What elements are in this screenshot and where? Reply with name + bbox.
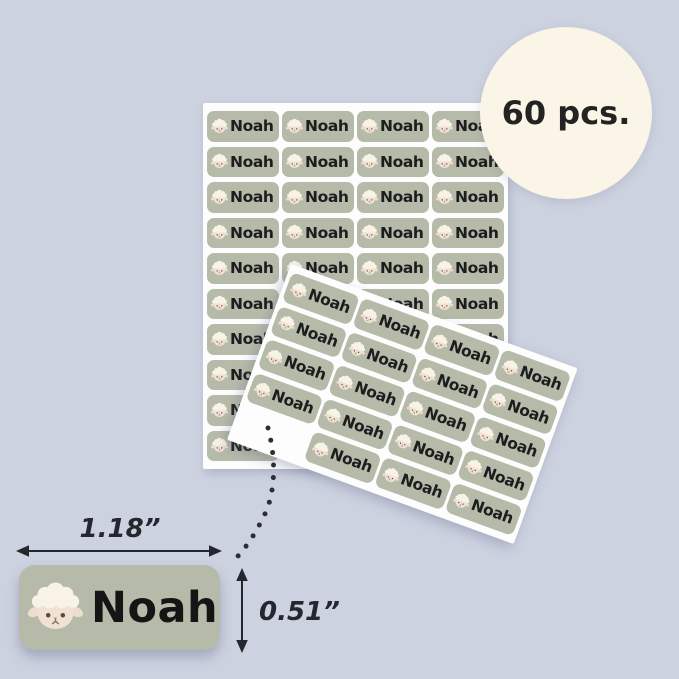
label-name-text: Noah bbox=[505, 396, 552, 428]
name-label: Noah bbox=[207, 253, 279, 284]
label-name-text: Noah bbox=[294, 319, 341, 351]
height-dimension-label: 0.51” bbox=[259, 597, 340, 627]
sheep-icon bbox=[286, 153, 303, 170]
label-name-text: Noah bbox=[380, 188, 424, 206]
label-name-text: Noah bbox=[352, 378, 399, 410]
sheep-icon bbox=[211, 437, 228, 454]
label-name-text: Noah bbox=[410, 437, 457, 469]
name-label: Noah bbox=[357, 111, 429, 142]
name-label: Noah bbox=[282, 218, 354, 249]
name-label: Noah bbox=[357, 182, 429, 213]
name-label: Noah bbox=[432, 253, 504, 284]
label-name-text: Noah bbox=[269, 386, 316, 418]
label-name-text: Noah bbox=[455, 295, 499, 313]
label-name-text: Noah bbox=[455, 224, 499, 242]
sheep-icon bbox=[436, 153, 453, 170]
sample-sticker: Noah bbox=[19, 565, 220, 650]
label-name-text: Noah bbox=[517, 363, 564, 395]
label-name-text: Noah bbox=[493, 429, 540, 461]
name-label: Noah bbox=[357, 147, 429, 178]
name-label: Noah bbox=[357, 218, 429, 249]
height-arrow bbox=[236, 568, 248, 653]
name-label: Noah bbox=[282, 147, 354, 178]
sheep-icon bbox=[361, 118, 378, 135]
sheep-icon bbox=[211, 402, 228, 419]
label-name-text: Noah bbox=[380, 117, 424, 135]
label-name-text: Noah bbox=[281, 352, 328, 384]
name-label: Noah bbox=[207, 182, 279, 213]
label-name-text: Noah bbox=[380, 153, 424, 171]
name-label: Noah bbox=[207, 218, 279, 249]
width-dimension-label: 1.18” bbox=[55, 514, 185, 544]
label-name-text: Noah bbox=[305, 117, 349, 135]
sheep-icon bbox=[211, 224, 228, 241]
sheep-icon bbox=[436, 295, 453, 312]
product-image-canvas: NoahNoahNoahNoahNoahNoahNoahNoahNoahNoah… bbox=[0, 0, 679, 679]
sheep-icon bbox=[211, 260, 228, 277]
label-name-text: Noah bbox=[481, 463, 528, 495]
label-name-text: Noah bbox=[328, 445, 375, 477]
name-label: Noah bbox=[282, 182, 354, 213]
sheep-icon bbox=[286, 189, 303, 206]
count-badge-text: 60 pcs. bbox=[502, 94, 631, 132]
label-name-text: Noah bbox=[422, 404, 469, 436]
label-name-text: Noah bbox=[230, 153, 274, 171]
sample-sticker-name: Noah bbox=[91, 583, 218, 633]
sheep-icon bbox=[211, 153, 228, 170]
sheep-icon bbox=[211, 366, 228, 383]
sheep-icon bbox=[361, 189, 378, 206]
label-name-text: Noah bbox=[230, 188, 274, 206]
sheep-icon bbox=[286, 118, 303, 135]
label-name-text: Noah bbox=[305, 153, 349, 171]
name-label: Noah bbox=[432, 218, 504, 249]
sticker-sheet-front: NoahNoahNoahNoahNoahNoahNoahNoahNoahNoah… bbox=[227, 264, 577, 544]
name-label: Noah bbox=[207, 289, 279, 320]
label-name-text: Noah bbox=[305, 188, 349, 206]
label-name-text: Noah bbox=[340, 411, 387, 443]
sheep-icon bbox=[211, 118, 228, 135]
label-name-text: Noah bbox=[305, 224, 349, 242]
sheep-icon bbox=[436, 118, 453, 135]
sheep-icon bbox=[436, 189, 453, 206]
sheep-icon bbox=[286, 224, 303, 241]
label-name-text: Noah bbox=[455, 259, 499, 277]
sheep-icon bbox=[436, 260, 453, 277]
sheep-icon bbox=[211, 189, 228, 206]
sheep-icon bbox=[436, 224, 453, 241]
label-name-text: Noah bbox=[447, 337, 494, 369]
label-name-text: Noah bbox=[230, 295, 274, 313]
sheep-icon bbox=[361, 224, 378, 241]
label-name-text: Noah bbox=[398, 470, 445, 502]
label-name-text: Noah bbox=[230, 224, 274, 242]
count-badge: 60 pcs. bbox=[480, 27, 652, 199]
label-name-text: Noah bbox=[434, 370, 481, 402]
label-name-text: Noah bbox=[380, 259, 424, 277]
sheep-icon bbox=[361, 153, 378, 170]
label-name-text: Noah bbox=[376, 311, 423, 343]
label-name-text: Noah bbox=[364, 345, 411, 377]
name-label: Noah bbox=[207, 147, 279, 178]
name-label: Noah bbox=[357, 253, 429, 284]
label-name-text: Noah bbox=[380, 224, 424, 242]
sheep-icon bbox=[361, 260, 378, 277]
sheep-icon bbox=[28, 580, 83, 635]
label-name-text: Noah bbox=[469, 496, 516, 528]
sheep-icon bbox=[211, 331, 228, 348]
sheep-icon bbox=[211, 295, 228, 312]
label-name-text: Noah bbox=[306, 286, 353, 318]
label-name-text: Noah bbox=[230, 259, 274, 277]
name-label: Noah bbox=[282, 111, 354, 142]
name-label: Noah bbox=[207, 111, 279, 142]
width-arrow bbox=[16, 545, 222, 557]
name-label: Noah bbox=[432, 182, 504, 213]
label-name-text: Noah bbox=[455, 188, 499, 206]
label-name-text: Noah bbox=[230, 117, 274, 135]
name-label: Noah bbox=[432, 289, 504, 320]
